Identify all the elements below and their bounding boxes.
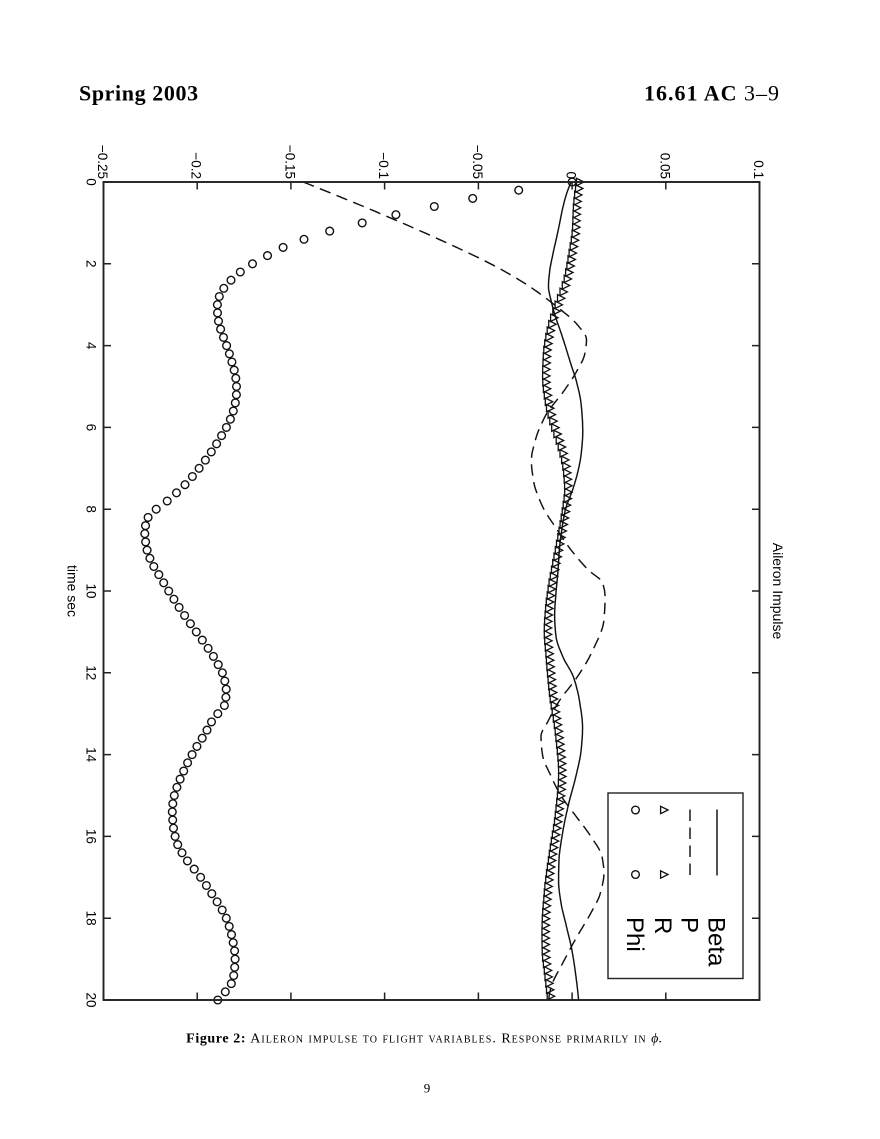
- svg-text:4: 4: [84, 342, 99, 350]
- svg-text:−0.15: −0.15: [282, 145, 297, 179]
- svg-text:Beta: Beta: [702, 917, 729, 967]
- svg-text:Aileron Impulse: Aileron Impulse: [770, 543, 786, 640]
- svg-text:R: R: [649, 917, 676, 934]
- svg-text:time sec: time sec: [65, 565, 81, 617]
- svg-text:16.61 AC 3–9: 16.61 AC 3–9: [644, 81, 780, 106]
- svg-text:2: 2: [84, 260, 99, 268]
- svg-text:0: 0: [84, 178, 99, 186]
- svg-text:20: 20: [84, 992, 99, 1007]
- svg-text:12: 12: [84, 665, 99, 680]
- svg-text:6: 6: [84, 424, 99, 432]
- svg-text:14: 14: [84, 747, 99, 763]
- svg-text:Phi: Phi: [621, 917, 648, 952]
- svg-text:0.1: 0.1: [751, 160, 766, 179]
- svg-text:9: 9: [424, 1081, 431, 1096]
- svg-text:0.05: 0.05: [657, 153, 672, 179]
- svg-text:−0.25: −0.25: [95, 145, 110, 179]
- svg-text:−0.05: −0.05: [470, 145, 485, 179]
- svg-text:−0.2: −0.2: [189, 152, 204, 179]
- svg-text:Spring 2003: Spring 2003: [79, 81, 199, 106]
- svg-text:10: 10: [84, 583, 99, 598]
- svg-text:18: 18: [84, 911, 99, 926]
- svg-text:P: P: [675, 917, 702, 933]
- svg-text:−0.1: −0.1: [376, 152, 391, 179]
- svg-text:0: 0: [564, 171, 579, 179]
- svg-text:Figure 2: Aileron impulse to f: Figure 2: Aileron impulse to flight vari…: [186, 1032, 662, 1047]
- svg-text:16: 16: [84, 829, 99, 844]
- svg-text:8: 8: [84, 505, 99, 513]
